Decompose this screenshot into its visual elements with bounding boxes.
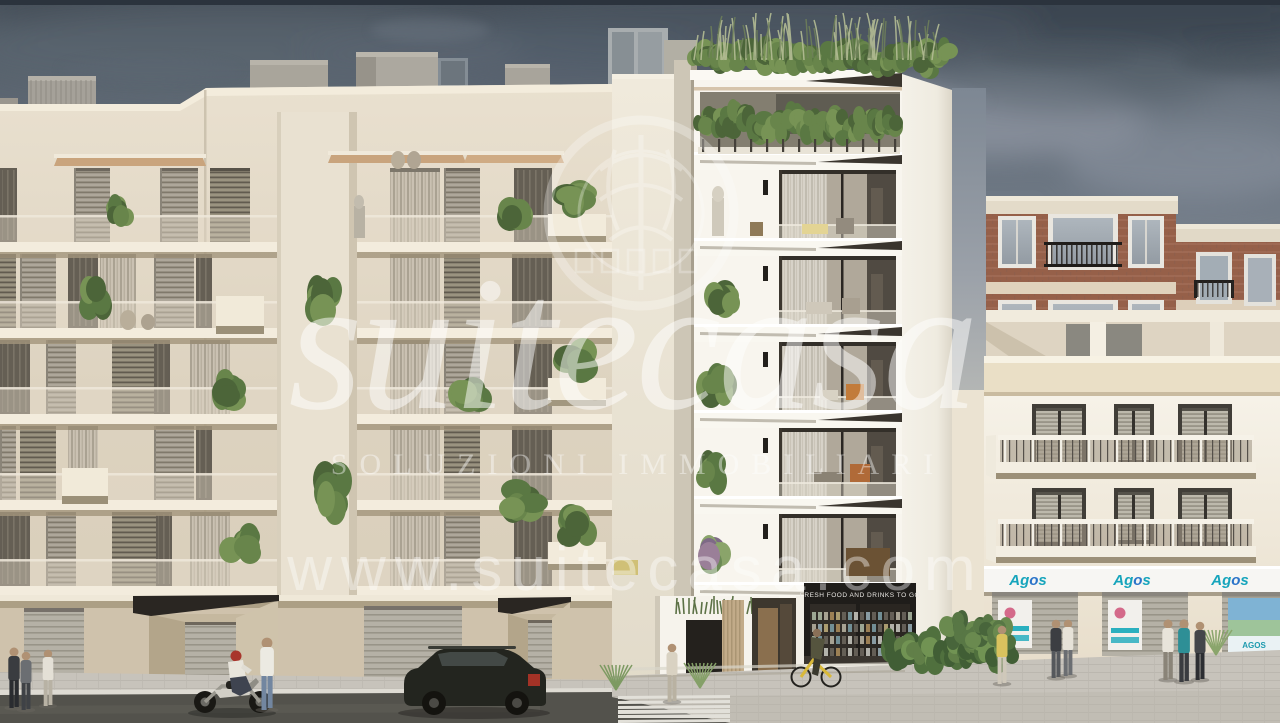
svg-text:SOLUZIONI IMMOBILIARI: SOLUZIONI IMMOBILIARI — [331, 448, 945, 481]
svg-text:www.suitecasa.com: www.suitecasa.com — [286, 535, 984, 604]
svg-text:Agos: Agos — [1210, 572, 1249, 589]
svg-text:AGOS: AGOS — [1242, 641, 1266, 650]
svg-text:suitecasa: suitecasa — [288, 237, 976, 450]
svg-text:Agos: Agos — [1008, 572, 1047, 589]
svg-text:Agos: Agos — [1112, 572, 1151, 589]
